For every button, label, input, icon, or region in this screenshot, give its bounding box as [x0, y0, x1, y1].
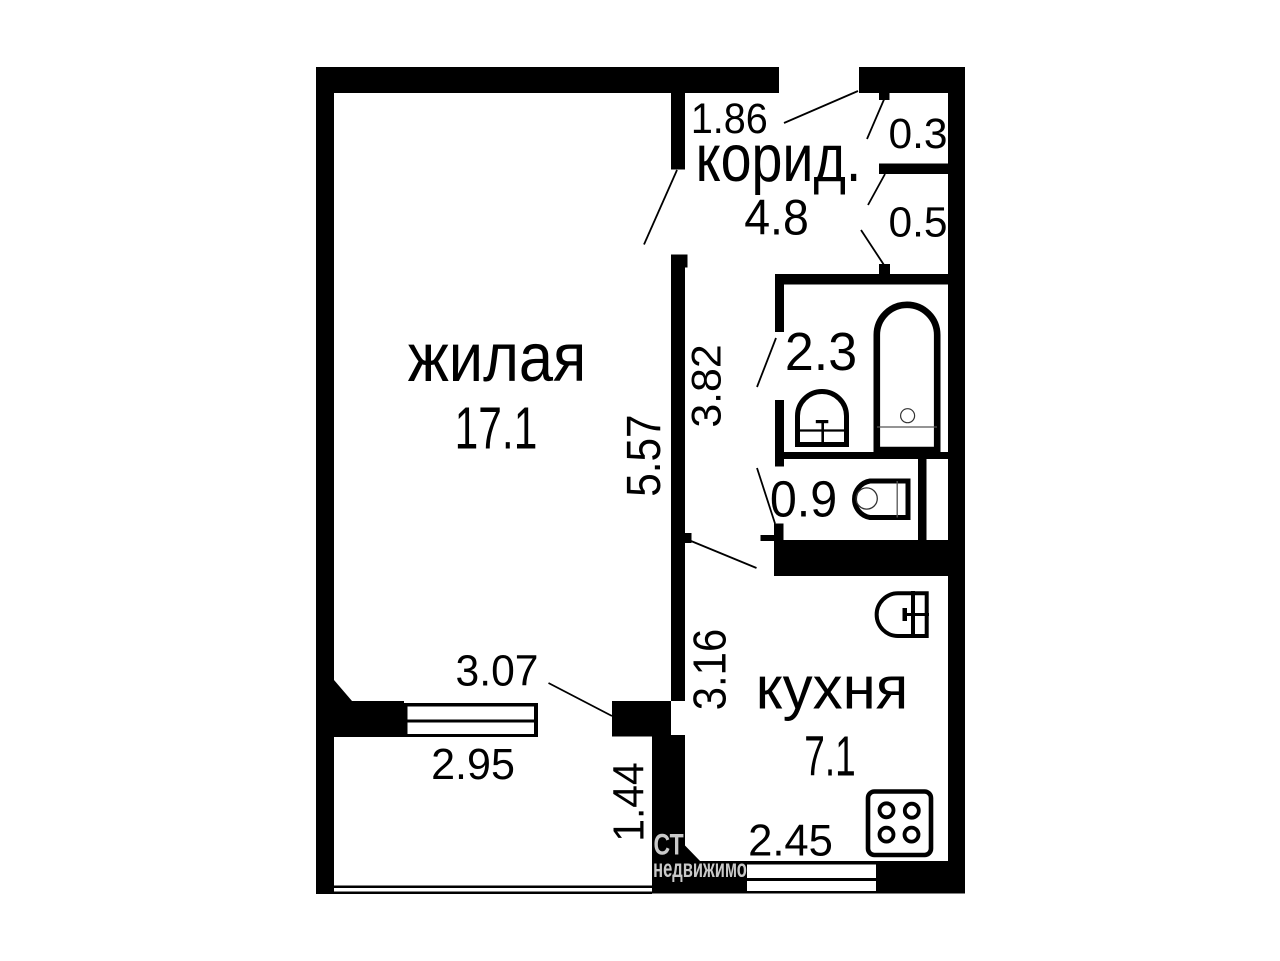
svg-text:2.45: 2.45 — [748, 816, 833, 865]
svg-text:0.9: 0.9 — [770, 470, 837, 527]
svg-text:0.5: 0.5 — [888, 199, 947, 246]
svg-text:4.8: 4.8 — [744, 190, 809, 246]
svg-text:2.3: 2.3 — [785, 322, 857, 382]
svg-text:5.57: 5.57 — [616, 414, 670, 496]
svg-text:3.82: 3.82 — [683, 344, 730, 427]
svg-text:недвижимо: недвижимо — [653, 856, 747, 883]
svg-text:1.44: 1.44 — [605, 762, 654, 842]
svg-text:1.86: 1.86 — [691, 95, 768, 143]
svg-text:2.95: 2.95 — [431, 741, 515, 789]
svg-text:17.1: 17.1 — [455, 394, 538, 461]
svg-text:3.07: 3.07 — [456, 647, 539, 695]
svg-text:3.16: 3.16 — [685, 629, 737, 710]
svg-text:0.3: 0.3 — [888, 111, 947, 158]
svg-text:жилая: жилая — [408, 319, 587, 396]
svg-text:кухня: кухня — [756, 654, 909, 721]
svg-text:7.1: 7.1 — [804, 725, 856, 789]
